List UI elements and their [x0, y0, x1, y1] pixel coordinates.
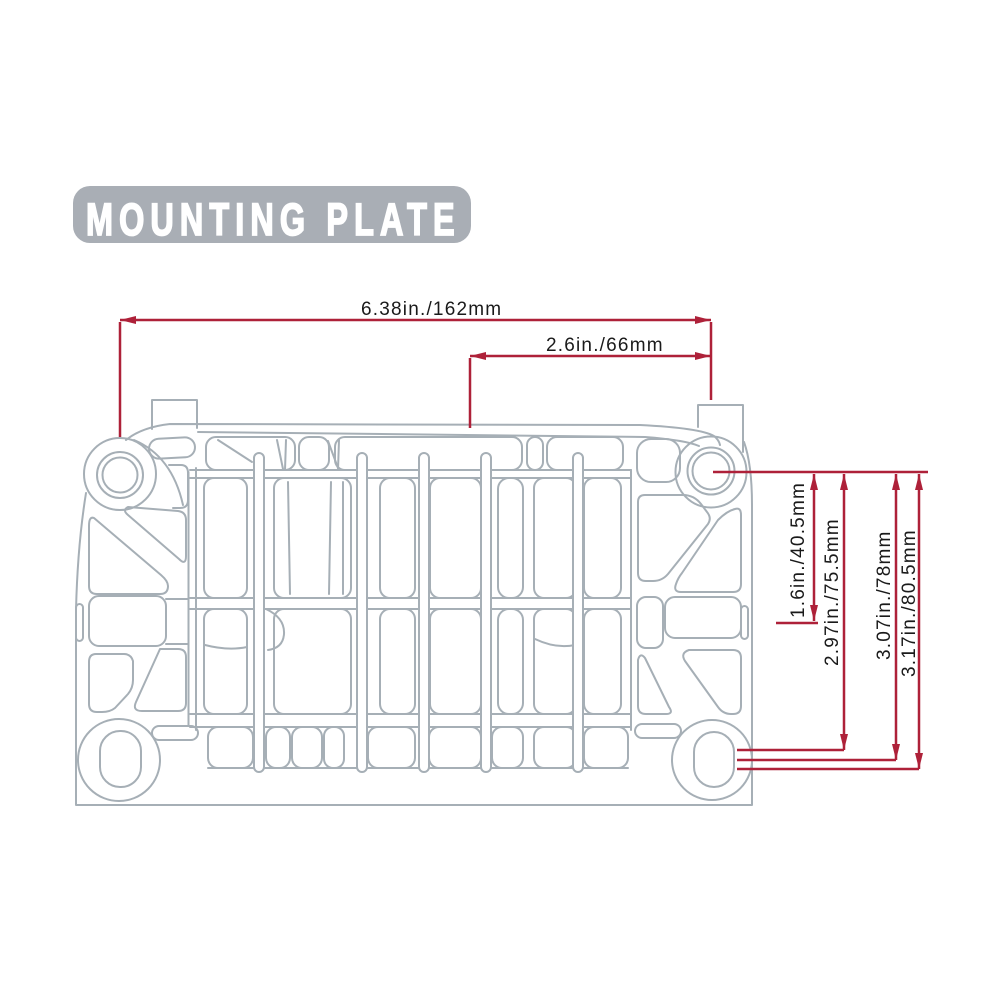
- svg-text:3.17in./80.5mm: 3.17in./80.5mm: [899, 529, 920, 677]
- svg-text:2.6in./66mm: 2.6in./66mm: [546, 335, 664, 356]
- svg-text:3.07in./78mm: 3.07in./78mm: [874, 530, 895, 660]
- svg-text:6.38in./162mm: 6.38in./162mm: [361, 299, 502, 320]
- svg-text:MOUNTING PLATE: MOUNTING PLATE: [86, 196, 461, 245]
- svg-text:2.97in./75.5mm: 2.97in./75.5mm: [822, 518, 843, 666]
- svg-text:1.6in./40.5mm: 1.6in./40.5mm: [788, 482, 809, 618]
